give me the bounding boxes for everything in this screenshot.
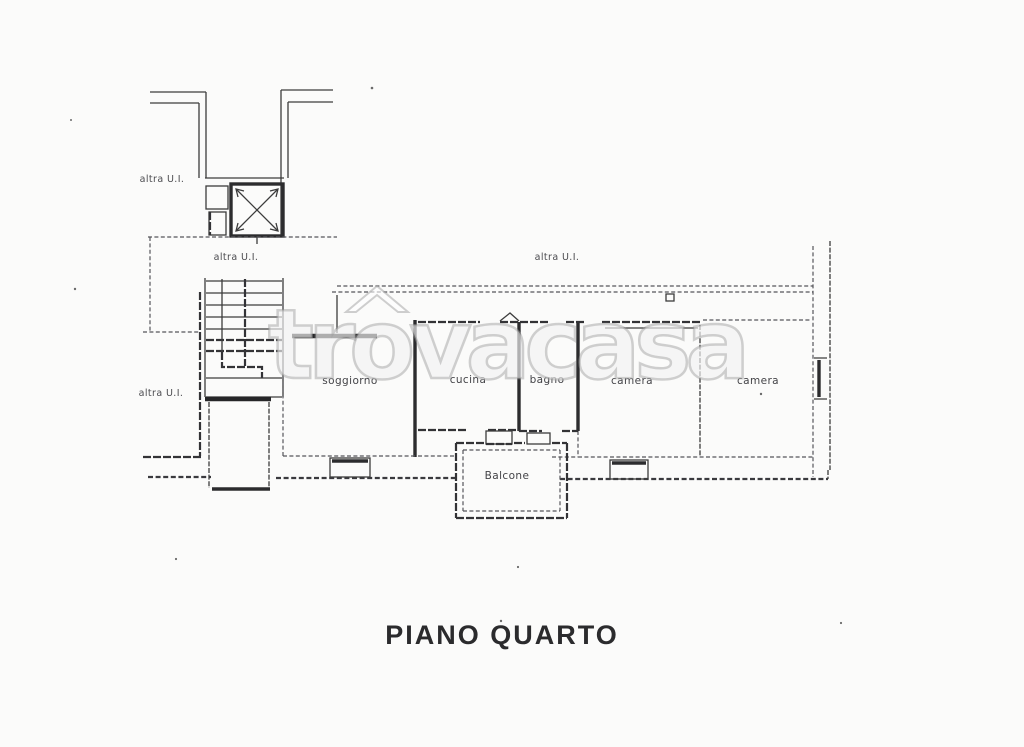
- scanned-floor-plan: altra U.I. altra U.I. altra U.I. altra U…: [0, 0, 1024, 747]
- scan-noise: [70, 87, 842, 624]
- terrace-parapet: [332, 286, 813, 292]
- elevator: [231, 184, 283, 244]
- label-altra-ui-bottom-left: altra U.I.: [139, 388, 184, 399]
- staircase: [205, 278, 283, 489]
- adjacent-unit-left-walls: [143, 237, 337, 477]
- label-camera-2: camera: [737, 375, 779, 387]
- floor-title: PIANO QUARTO: [385, 620, 619, 651]
- stair-tower-walls: [150, 90, 333, 236]
- label-camera-1: camera: [611, 375, 653, 387]
- label-altra-ui-terrace: altra U.I.: [535, 252, 580, 263]
- entry-hall: [292, 295, 377, 336]
- label-bagno: bagno: [530, 374, 565, 386]
- label-altra-ui-top-left: altra U.I.: [140, 174, 185, 185]
- label-cucina: cucina: [450, 374, 487, 386]
- bottom-walls: [283, 456, 813, 457]
- label-balcone: Balcone: [485, 470, 530, 482]
- label-soggiorno: soggiorno: [322, 375, 377, 387]
- label-altra-ui-stairwell: altra U.I.: [214, 252, 259, 263]
- closets: [206, 186, 228, 235]
